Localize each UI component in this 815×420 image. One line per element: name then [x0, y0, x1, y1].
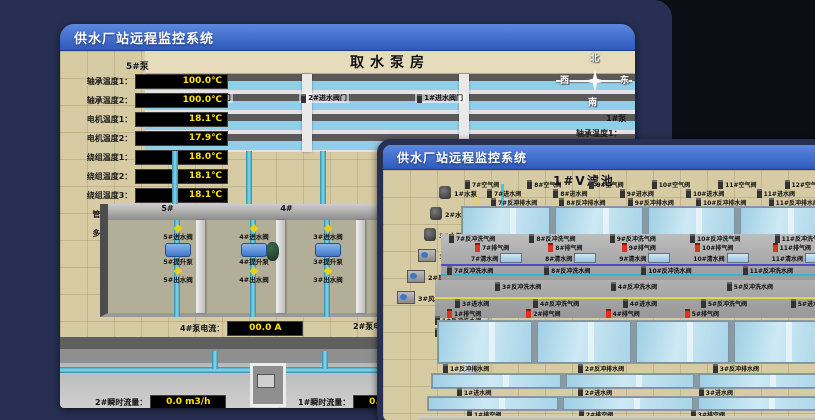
valve-icon: [324, 267, 333, 276]
red-valve-icon: [622, 243, 627, 252]
telemetry-row: 绕组温度2：18.1℃: [70, 169, 228, 184]
lift-pump-label: 5#提升泵: [136, 258, 220, 267]
outlet-valve-label: 4#出水阀: [212, 276, 296, 285]
exhaust-valve-label: 8#排气阀: [555, 243, 582, 252]
inlet-valve[interactable]: 8#进水阀: [553, 189, 587, 198]
outlet-valve-label: 3#出水阀: [286, 276, 370, 285]
backwash-drain-valve-label: 2#反冲排水阀: [585, 364, 624, 373]
drain-valves-bottom-row: 1#反冲排水阀2#反冲排水阀3#反冲排水阀: [443, 364, 759, 373]
filter-valve[interactable]: 3#进水阀: [455, 299, 489, 308]
lift-pump-label: 3#提升泵: [286, 258, 370, 267]
valve-icon: [578, 364, 583, 373]
filter-cell: [438, 321, 532, 363]
red-valve-icon: [526, 309, 531, 318]
inlet-valve-label: 9#进水阀: [627, 189, 654, 198]
backwash-air-valve-label: 11#反冲洗气阀: [782, 234, 815, 243]
telemetry-row-value: 17.9℃: [135, 131, 228, 146]
clean-water-valve-label: 8#清水阀: [545, 254, 572, 263]
telemetry-row-value: 18.1℃: [135, 169, 228, 184]
lift-pump-label: 4#提升泵: [212, 258, 296, 267]
compass-south: 南: [588, 95, 597, 108]
clean-water-valve[interactable]: 9#清水阀: [619, 253, 670, 263]
telemetry-row-value: 100.0℃: [135, 93, 228, 108]
filter-valve-label: 5#进水阀: [798, 299, 815, 308]
blower-icon: [407, 270, 425, 283]
valve-icon: [686, 189, 691, 198]
filter-valve-label: 5#反冲洗气阀: [708, 299, 747, 308]
valve-icon: [465, 180, 470, 189]
pump-icon: [430, 207, 442, 220]
air-valve-label: 10#空气阀: [659, 180, 690, 189]
telemetry-row-value: 18.0℃: [135, 150, 228, 165]
valve-icon: [611, 282, 616, 291]
inlet-valve-label: 7#进水阀: [494, 189, 521, 198]
pipe: [212, 351, 218, 369]
valve-icon: [495, 282, 500, 291]
filter-cell: [537, 321, 631, 363]
telemetry-row-label: 绕组温度2：: [70, 171, 132, 182]
clean-water-valve-label: 7#清水阀: [471, 254, 498, 263]
clean-water-valve[interactable]: 10#清水阀: [693, 253, 748, 263]
telemetry-row: 绕组温度3：18.1℃: [70, 188, 228, 203]
clean-water-tank: [574, 253, 596, 263]
flow-meter-device: [250, 363, 286, 407]
middle-walkway: 3#反冲洗水阀4#反冲洗水阀5#反冲洗水阀 3#进水阀4#反冲洗气阀4#进水阀5…: [435, 280, 815, 318]
compass-star-icon: [584, 70, 606, 92]
flow2-reading: 2#瞬时流量： 0.0 m3/h: [95, 395, 226, 408]
filter-valve-label: 4#进水阀: [630, 299, 657, 308]
valve-icon: [718, 180, 723, 189]
telemetry-row: 轴承温度1：100.0℃: [70, 74, 228, 89]
valve-icon: [727, 282, 732, 291]
telemetry-row-label: 绕组温度1：: [70, 152, 132, 163]
inlet-valve-door-label: 1#进水阀门: [424, 93, 463, 103]
channel-cell: [566, 374, 695, 388]
valve-icon: [544, 266, 549, 275]
filter-valve-label: 3#进水阀: [462, 299, 489, 308]
valve-icon: [527, 180, 532, 189]
valve-icon: [487, 189, 492, 198]
telemetry-row-label: 轴承温度2：: [70, 95, 132, 106]
pipe: [320, 151, 326, 206]
channel-cell: [428, 397, 558, 410]
valve-icon: [743, 266, 748, 275]
valve-icon: [701, 299, 706, 308]
exhaust-valve[interactable]: 10#排气阀: [695, 243, 733, 252]
flow2-label: 2#瞬时流量：: [95, 397, 147, 408]
backwash-water-valve-label: 11#反冲洗水阀: [750, 266, 793, 275]
telemetry-row-value: 18.1℃: [135, 112, 228, 127]
exhaust-valve[interactable]: 8#排气阀: [548, 243, 582, 252]
air-valve-label: 11#空气阀: [725, 180, 756, 189]
clean-water-valve[interactable]: 8#清水阀: [545, 253, 596, 263]
telemetry-row: 绕组温度1：18.0℃: [70, 150, 228, 165]
telemetry-row-value: 18.1℃: [135, 188, 228, 203]
pump-icon: [424, 228, 436, 241]
pump-icon: [241, 243, 267, 257]
clean-water-tank: [648, 253, 670, 263]
valve-icon: [713, 364, 718, 373]
inlet-valve-door[interactable]: 2#进水阀门: [299, 93, 349, 103]
backwash-air-valve-label: 7#反冲洗气阀: [456, 234, 495, 243]
air-valve[interactable]: 8#空气阀: [527, 180, 561, 189]
valve-icon: [589, 180, 594, 189]
blower-icon: [397, 291, 415, 304]
backwash-water-valve-label: 8#反冲洗水阀: [551, 266, 590, 275]
clean-water-valve-label: 11#清水阀: [772, 254, 803, 263]
pump-bay-4[interactable]: 4#进水阀 4#提升泵 4#出水阀: [212, 224, 296, 284]
valve-icon: [447, 266, 452, 275]
pump5-panel-header: 5#泵: [126, 59, 228, 72]
pump-icon: [165, 243, 191, 257]
pump4-current-reading: 4#泵电流： 00.0 A: [180, 321, 303, 336]
backwash-air-valve[interactable]: 8#反冲洗气阀: [529, 234, 575, 243]
air-valve-label: 8#空气阀: [534, 180, 561, 189]
valve-icon: [620, 189, 625, 198]
clean-water-valve-label: 9#清水阀: [619, 254, 646, 263]
filter-cell: [734, 321, 815, 363]
compass-north: 北: [590, 51, 599, 64]
filter-valve[interactable]: 4#进水阀: [623, 299, 657, 308]
front-window-title: 供水厂站远程监控系统: [397, 149, 527, 166]
pump-bay-3[interactable]: 3#进水阀 3#提升泵 3#出水阀: [286, 224, 370, 284]
inlet-valve[interactable]: 10#进水阀: [686, 189, 724, 198]
telemetry-label: 轴承温度1：: [576, 128, 626, 139]
backwash-air-valve[interactable]: 7#反冲洗气阀: [449, 234, 495, 243]
exhaust-valve[interactable]: 11#排气阀: [773, 243, 811, 252]
exhaust-valve-label: 7#排气阀: [482, 243, 509, 252]
valve-icon: [610, 234, 615, 243]
backwash-air-valve[interactable]: 11#反冲洗气阀: [775, 234, 815, 243]
valve-icon: [449, 234, 454, 243]
exhaust-valve[interactable]: 9#排气阀: [622, 243, 656, 252]
filter-pool-row-1: [461, 206, 815, 236]
backwash-drain-valve-label: 3#反冲排水阀: [720, 364, 759, 373]
clean-water-row: 7#清水阀8#清水阀9#清水阀10#清水阀11#清水阀: [471, 253, 815, 263]
valve-icon: [757, 189, 762, 198]
valve-icon: [455, 299, 460, 308]
backwash-water-row-mid: 3#反冲洗水阀4#反冲洗水阀5#反冲洗水阀: [495, 282, 773, 291]
equipment-item-label: 1#水泵: [454, 188, 477, 198]
valve-icon: [652, 180, 657, 189]
filter-cell: [555, 207, 643, 235]
pump1-panel-header: 1#泵: [606, 113, 626, 124]
exhaust-valve-label: 10#排气阀: [702, 243, 733, 252]
pump-bay-number: 5#: [108, 204, 227, 220]
red-valve-icon: [606, 309, 611, 318]
inlet-valve[interactable]: 7#进水阀: [487, 189, 521, 198]
pump-icon: [439, 186, 451, 199]
blower-icon: [418, 249, 436, 262]
inlet-valve[interactable]: 9#进水阀: [620, 189, 654, 198]
back-window-titlebar[interactable]: 供水厂站远程监控系统: [60, 24, 635, 51]
telemetry-row-label: 绕组温度3：: [70, 190, 132, 201]
inlet-channel-row: [431, 373, 815, 389]
backwash-drain-valve[interactable]: 2#反冲排水阀: [578, 364, 624, 373]
pump-bay-5[interactable]: 5#进水阀 5#提升泵 5#出水阀: [136, 224, 220, 284]
channel-cell: [698, 397, 815, 410]
air-valve[interactable]: 9#空气阀: [589, 180, 623, 189]
red-valve-icon: [475, 243, 480, 252]
exhaust-valve[interactable]: 7#排气阀: [475, 243, 509, 252]
filter-valve-label: 4#反冲洗气阀: [540, 299, 579, 308]
inlet-valve-door[interactable]: 1#进水阀门: [415, 93, 465, 103]
backwash-water-valve-label: 3#反冲洗水阀: [502, 282, 541, 291]
filter-valve[interactable]: 5#进水阀: [791, 299, 815, 308]
bottom-wall: [419, 416, 815, 420]
channel-cell: [432, 374, 561, 388]
backwash-water-valve[interactable]: 8#反冲洗水阀: [544, 266, 590, 275]
exhaust-row: 7#排气阀8#排气阀9#排气阀10#排气阀11#排气阀: [475, 243, 811, 252]
telemetry-row-value: 100.0℃: [135, 74, 228, 89]
telemetry-row: 电机温度1：18.1℃: [70, 112, 228, 127]
backwash-air-valve-label: 8#反冲洗气阀: [536, 234, 575, 243]
inlet-valve-label: 4#进水阀: [212, 233, 296, 242]
red-valve-icon: [773, 243, 778, 252]
air-valve[interactable]: 10#空气阀: [652, 180, 690, 189]
compass-east: 东: [620, 73, 629, 86]
inlet-valve-label: 3#进水阀: [286, 233, 370, 242]
backwash-water-valve-label: 7#反冲洗水阀: [454, 266, 493, 275]
valve-icon: [250, 224, 259, 233]
pump4-current-value: 00.0 A: [227, 321, 303, 336]
backwash-air-valve-label: 10#反冲洗气阀: [697, 234, 740, 243]
backwash-drain-valve[interactable]: 1#反冲排水阀: [443, 364, 489, 373]
vent-channel-row: [427, 396, 815, 411]
valve-icon: [529, 234, 534, 243]
exhaust-valve[interactable]: 4#排气阀: [606, 309, 640, 318]
backwash-water-valve[interactable]: 3#反冲洗水阀: [495, 282, 541, 291]
backwash-water-row: 7#反冲洗水阀8#反冲洗水阀10#反冲洗水阀11#反冲洗水阀: [447, 266, 793, 275]
air-valve[interactable]: 12#空气阀: [785, 180, 815, 189]
valve-icon: [443, 364, 448, 373]
clean-water-tank: [727, 253, 749, 263]
exhaust-valve-label: 5#排气阀: [692, 309, 719, 318]
backwash-water-valve-label: 10#反冲洗水阀: [648, 266, 691, 275]
backwash-water-valve[interactable]: 4#反冲洗水阀: [611, 282, 657, 291]
pump-bay-number: 4#: [227, 204, 346, 220]
inlet-valve-label: 11#进水阀: [764, 189, 795, 198]
exhaust-valve-label: 4#排气阀: [613, 309, 640, 318]
filter-window: 供水厂站远程监控系统 1#V滤池 1#水泵2#水泵3#水泵1#风机2#风机3#风…: [377, 139, 815, 420]
inlet-valve-door-label: 2#进水阀门: [308, 93, 347, 103]
filter-pool-row-2: [437, 320, 815, 364]
valve-icon: [775, 234, 780, 243]
clean-water-tank: [805, 253, 815, 263]
filter-cell: [636, 321, 730, 363]
backwash-air-valve[interactable]: 9#反冲洗气阀: [610, 234, 656, 243]
valve-icon: [553, 189, 558, 198]
inlet-valve-label: 8#进水阀: [560, 189, 587, 198]
inlet-valves-row: 7#进水阀8#进水阀9#进水阀10#进水阀11#进水阀: [487, 189, 795, 198]
valve-icon: [533, 299, 538, 308]
compass: 北 南 西 东: [554, 51, 635, 111]
red-valve-icon: [685, 309, 690, 318]
air-valve-label: 12#空气阀: [792, 180, 815, 189]
telemetry-row: 电机温度2：17.9℃: [70, 131, 228, 146]
telemetry-row: 轴承温度2：100.0℃: [70, 93, 228, 108]
flow2-value: 0.0 m3/h: [150, 395, 226, 408]
air-valve-label: 9#空气阀: [596, 180, 623, 189]
air-valves-row: 7#空气阀8#空气阀9#空气阀10#空气阀11#空气阀12#空气阀: [465, 180, 815, 189]
valve-icon: [785, 180, 790, 189]
backwash-water-valve-label: 4#反冲洗水阀: [618, 282, 657, 291]
back-window-title: 供水厂站远程监控系统: [74, 28, 214, 47]
inlet-valve-label: 5#进水阀: [136, 233, 220, 242]
pump-icon: [315, 243, 341, 257]
exhaust-valve-label: 11#排气阀: [780, 243, 811, 252]
pipe: [246, 151, 252, 206]
backwash-water-valve[interactable]: 7#反冲洗水阀: [447, 266, 493, 275]
telemetry-row-label: 电机温度1：: [70, 114, 132, 125]
backwash-water-valve[interactable]: 10#反冲洗水阀: [641, 266, 691, 275]
exhaust-valve-label: 2#排气阀: [533, 309, 560, 318]
clean-water-tank: [500, 253, 522, 263]
backwash-water-valve[interactable]: 11#反冲洗水阀: [743, 266, 793, 275]
building-pillar: [302, 74, 312, 152]
filter-valve[interactable]: 4#反冲洗气阀: [533, 299, 579, 308]
inlet-valve-label: 10#进水阀: [693, 189, 724, 198]
pipe: [322, 351, 328, 369]
air-valve-label: 7#空气阀: [472, 180, 499, 189]
backwash-water-valve-label: 5#反冲洗水阀: [734, 282, 773, 291]
red-valve-icon: [548, 243, 553, 252]
filter-scene: 1#V滤池 1#水泵2#水泵3#水泵1#风机2#风机3#风机 7#空气阀8#空气…: [383, 170, 815, 420]
backwash-air-valve-label: 9#反冲洗气阀: [617, 234, 656, 243]
exhaust-valve[interactable]: 2#排气阀: [526, 309, 560, 318]
flow1-label: 1#瞬时流量：: [298, 397, 350, 408]
channel-cell: [563, 397, 693, 410]
valve-icon: [690, 234, 695, 243]
backwash-air-valve[interactable]: 10#反冲洗气阀: [690, 234, 740, 243]
valve-icon: [791, 299, 796, 308]
valve-icon: [174, 224, 183, 233]
clean-water-valve-label: 10#清水阀: [693, 254, 724, 263]
valve-icon: [174, 267, 183, 276]
valve-icon: [301, 94, 306, 103]
telemetry-row-label: 电机温度2：: [70, 133, 132, 144]
upper-walkway: 7#反冲洗气阀8#反冲洗气阀9#反冲洗气阀10#反冲洗气阀11#反冲洗气阀 7#…: [441, 234, 815, 280]
scene-title: 取水泵房: [350, 52, 430, 72]
pump4-current-label: 4#泵电流：: [180, 323, 224, 334]
front-window-titlebar[interactable]: 供水厂站远程监控系统: [383, 145, 815, 170]
air-valve[interactable]: 11#空气阀: [718, 180, 756, 189]
backwash-drain-valve[interactable]: 3#反冲排水阀: [713, 364, 759, 373]
backwash-water-valve[interactable]: 5#反冲洗水阀: [727, 282, 773, 291]
channel-cell: [699, 374, 815, 388]
mixed-valves-row: 3#进水阀4#反冲洗气阀4#进水阀5#反冲洗气阀5#进水阀: [455, 299, 815, 308]
compass-west: 西: [560, 73, 569, 86]
filter-cell: [462, 207, 550, 235]
outlet-valve-label: 5#出水阀: [136, 276, 220, 285]
air-valve[interactable]: 7#空气阀: [465, 180, 499, 189]
backwash-air-row: 7#反冲洗气阀8#反冲洗气阀9#反冲洗气阀10#反冲洗气阀11#反冲洗气阀: [449, 234, 815, 243]
pipe: [172, 151, 178, 206]
desktop: 供水厂站远程监控系统 取水泵房 3#进水阀门2#进水阀门1#进水阀门 5#泵 轴…: [0, 0, 815, 420]
filter-cell: [740, 207, 815, 235]
exhaust-valve-label: 9#排气阀: [629, 243, 656, 252]
red-valve-icon: [695, 243, 700, 252]
filter-cell: [648, 207, 736, 235]
clean-water-valve[interactable]: 11#清水阀: [772, 253, 815, 263]
filter-valve[interactable]: 5#反冲洗气阀: [701, 299, 747, 308]
valve-icon: [250, 267, 259, 276]
valve-icon: [324, 224, 333, 233]
inlet-valve[interactable]: 11#进水阀: [757, 189, 795, 198]
exhaust-valve[interactable]: 5#排气阀: [685, 309, 719, 318]
clean-water-valve[interactable]: 7#清水阀: [471, 253, 522, 263]
valve-icon: [623, 299, 628, 308]
backwash-drain-valve-label: 1#反冲排水阀: [450, 364, 489, 373]
telemetry-row-label: 轴承温度1：: [70, 76, 132, 87]
valve-icon: [641, 266, 646, 275]
valve-icon: [417, 94, 422, 103]
